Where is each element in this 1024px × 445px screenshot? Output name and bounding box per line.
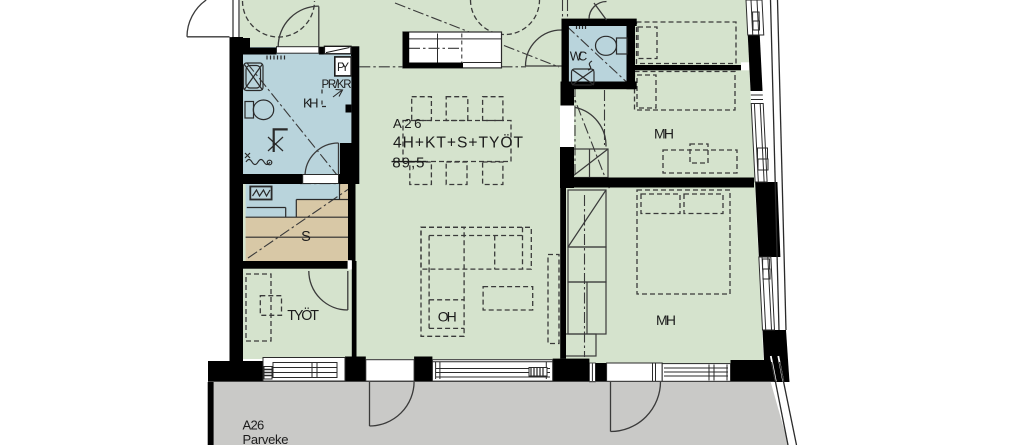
svg-text:TYÖT: TYÖT — [287, 306, 319, 324]
svg-text:A26: A26 — [243, 418, 265, 433]
svg-text:4H+KT+S+TYÖT: 4H+KT+S+TYÖT — [393, 133, 523, 151]
svg-text:PR/KR: PR/KR — [322, 79, 352, 91]
svg-text:WC: WC — [570, 49, 588, 64]
svg-text:PY: PY — [337, 62, 349, 74]
svg-text:OH: OH — [438, 309, 457, 325]
svg-text:KH: KH — [303, 96, 319, 111]
svg-text:S: S — [301, 229, 311, 245]
svg-text:MH: MH — [656, 312, 676, 328]
svg-text:MH: MH — [654, 126, 674, 142]
svg-text:A26: A26 — [393, 116, 422, 131]
svg-text:Parveke: Parveke — [243, 432, 289, 445]
svg-text:89,5: 89,5 — [392, 155, 424, 172]
